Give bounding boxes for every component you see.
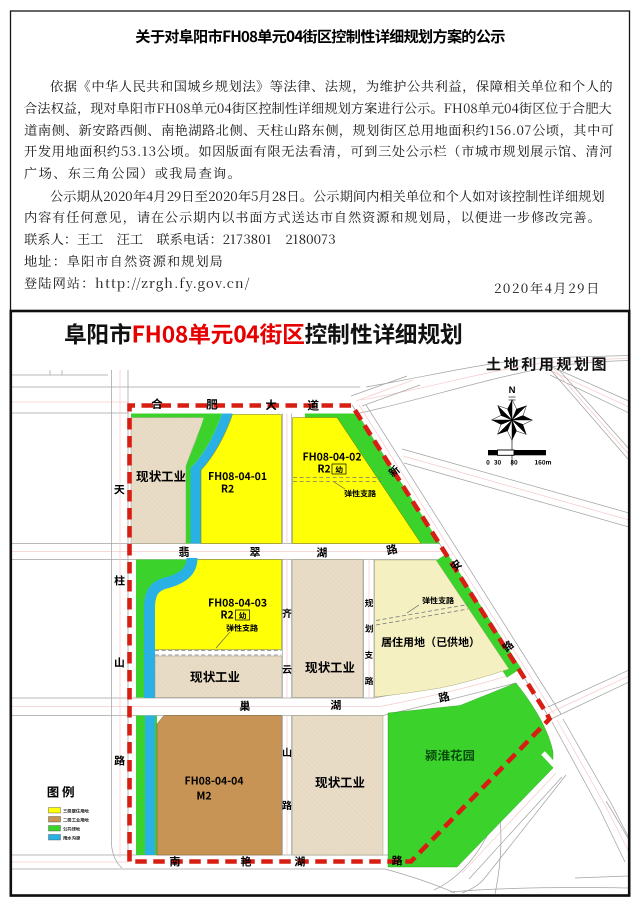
svg-text:80: 80 bbox=[510, 458, 518, 467]
svg-text:FH08-04-03: FH08-04-03 bbox=[208, 596, 267, 611]
svg-text:路: 路 bbox=[365, 675, 374, 687]
svg-text:翠: 翠 bbox=[250, 544, 261, 560]
svg-text:弹性支路: 弹性支路 bbox=[226, 623, 258, 634]
svg-text:FH08-04-01: FH08-04-01 bbox=[208, 469, 267, 484]
svg-text:30: 30 bbox=[494, 458, 502, 467]
svg-text:现状工业: 现状工业 bbox=[315, 772, 365, 791]
svg-text:公共绿地: 公共绿地 bbox=[62, 826, 81, 832]
svg-text:柱: 柱 bbox=[114, 573, 125, 589]
svg-text:湖: 湖 bbox=[295, 854, 306, 870]
svg-text:现状工业: 现状工业 bbox=[136, 466, 186, 485]
svg-text:居住用地（已供地）: 居住用地（已供地） bbox=[381, 634, 480, 650]
svg-text:云: 云 bbox=[282, 661, 292, 676]
svg-text:二类工业用地: 二类工业用地 bbox=[63, 817, 89, 823]
svg-text:现状工业: 现状工业 bbox=[305, 657, 355, 676]
svg-text:天: 天 bbox=[114, 482, 126, 498]
svg-text:湖: 湖 bbox=[331, 697, 342, 713]
svg-text:山: 山 bbox=[282, 744, 292, 759]
svg-text:大: 大 bbox=[265, 397, 277, 413]
svg-text:南: 南 bbox=[170, 854, 181, 870]
svg-text:路: 路 bbox=[437, 688, 453, 706]
svg-text:翡: 翡 bbox=[179, 544, 190, 560]
svg-text:湖: 湖 bbox=[317, 545, 328, 561]
svg-text:N: N bbox=[509, 385, 516, 396]
svg-text:现状工业: 现状工业 bbox=[190, 667, 240, 686]
svg-text:阜阳市FH08单元04街区控制性详细规划: 阜阳市FH08单元04街区控制性详细规划 bbox=[64, 317, 463, 350]
svg-text:FH08-04-02: FH08-04-02 bbox=[302, 450, 361, 465]
svg-text:土地利用规划图: 土地利用规划图 bbox=[486, 354, 609, 375]
svg-text:幼: 幼 bbox=[239, 610, 247, 621]
svg-text:幼: 幼 bbox=[335, 464, 343, 475]
svg-text:路: 路 bbox=[114, 753, 126, 769]
svg-text:R2: R2 bbox=[317, 462, 330, 477]
svg-text:路: 路 bbox=[392, 853, 404, 869]
svg-text:颍淮花园: 颍淮花园 bbox=[425, 745, 475, 764]
svg-text:弹性支路: 弹性支路 bbox=[422, 596, 454, 607]
svg-text:弹性支路: 弹性支路 bbox=[344, 489, 376, 500]
svg-text:划: 划 bbox=[364, 623, 374, 635]
svg-text:艳: 艳 bbox=[241, 854, 252, 870]
svg-text:FH08-04-04: FH08-04-04 bbox=[184, 774, 243, 789]
svg-text:规: 规 bbox=[365, 597, 374, 609]
svg-text:支: 支 bbox=[365, 649, 374, 661]
svg-text:R2: R2 bbox=[220, 608, 233, 623]
svg-text:齐: 齐 bbox=[281, 605, 292, 620]
svg-text:路: 路 bbox=[282, 797, 293, 812]
svg-text:山: 山 bbox=[114, 655, 125, 671]
svg-text:三类居住用地: 三类居住用地 bbox=[63, 808, 89, 814]
svg-text:道: 道 bbox=[307, 398, 319, 414]
svg-text:M2: M2 bbox=[196, 789, 211, 804]
svg-text:巢: 巢 bbox=[240, 698, 251, 714]
svg-text:0: 0 bbox=[486, 458, 490, 467]
svg-text:160m: 160m bbox=[535, 458, 552, 467]
svg-text:图 例: 图 例 bbox=[47, 782, 75, 801]
svg-text:R2: R2 bbox=[221, 482, 234, 497]
svg-text:合: 合 bbox=[151, 396, 163, 412]
svg-text:肥: 肥 bbox=[205, 397, 218, 413]
svg-text:雨水沟渠: 雨水沟渠 bbox=[63, 835, 81, 841]
